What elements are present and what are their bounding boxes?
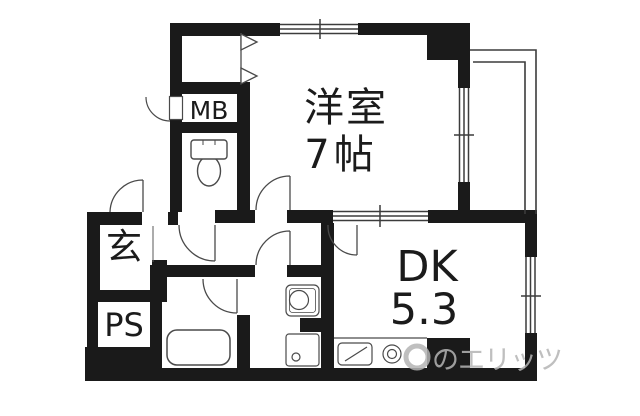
folding-door-icon [241, 33, 257, 84]
floor-plan-canvas: 洋室 7帖 DK 5.3 玄 PS MB のエリッツ [0, 0, 640, 416]
stove-burner-icon [383, 345, 401, 363]
watermark-text: のエリッツ [432, 345, 562, 376]
room-size-western-room: 7帖 [304, 132, 377, 178]
bathtub-icon [167, 330, 230, 365]
label-pipe-space: PS [104, 306, 144, 344]
toilet-icon [191, 140, 227, 186]
brand-logo-icon [406, 346, 428, 368]
room-label-western-room: 洋室 [304, 85, 388, 131]
label-entrance: 玄 [106, 227, 142, 268]
kitchen-sink-icon [338, 343, 372, 365]
washbasin-icon [286, 285, 319, 316]
room-size-dk: 5.3 [390, 285, 458, 335]
kitchen-counter [334, 338, 427, 365]
washing-machine-pan-icon [286, 334, 319, 366]
floor-plan: 洋室 7帖 DK 5.3 玄 PS MB のエリッツ [0, 0, 640, 416]
label-meter-box: MB [190, 96, 229, 125]
balcony-icon [470, 50, 536, 214]
meter-box-door-icon [146, 97, 183, 122]
walls [85, 23, 537, 381]
